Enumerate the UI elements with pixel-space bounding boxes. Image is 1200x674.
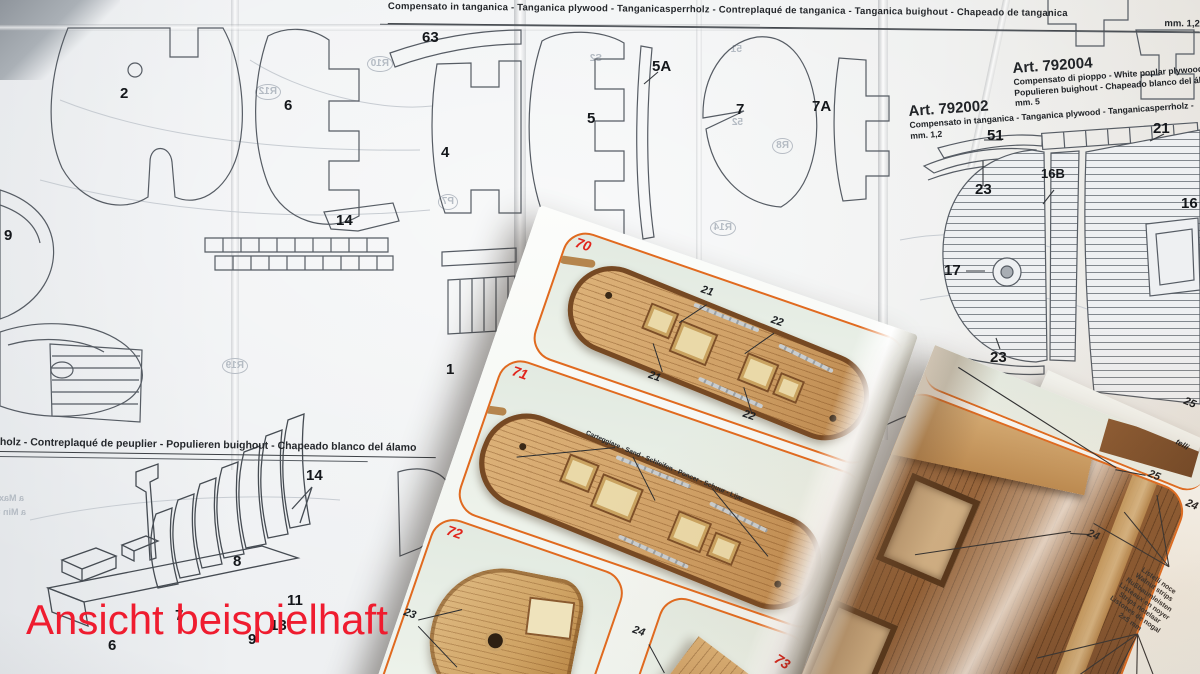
part-ref-25-clipped: 25 (1182, 396, 1197, 411)
clipped-edge-labels: 2524telli (0, 0, 1200, 674)
clipped-text-fragment: telli (1174, 438, 1190, 452)
photo-of-model-ship-plans: 5152S2P7R8R14R10R12R19a Max = 2 mma Min … (0, 0, 1200, 674)
part-ref-24-clipped: 24 (1184, 498, 1199, 513)
sample-view-watermark: Ansicht beispielhaft (26, 596, 388, 644)
